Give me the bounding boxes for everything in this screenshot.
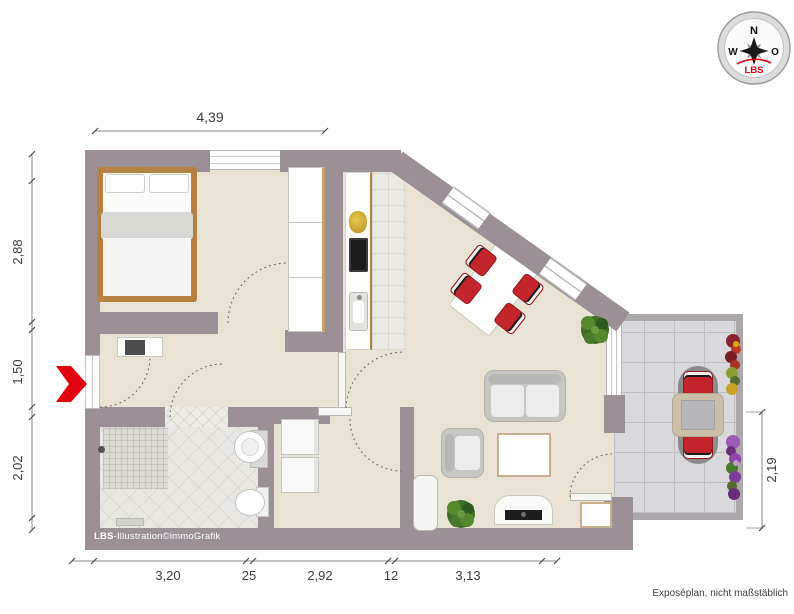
terrace-wall-right — [736, 314, 743, 520]
compass-n: N — [750, 25, 758, 37]
wardrobe-shelf-line — [289, 222, 322, 223]
living-terrace-window — [606, 321, 622, 395]
dim-bottom-1: 3,20 — [155, 568, 180, 583]
washbasin — [234, 431, 266, 463]
sofa-cushion — [491, 385, 524, 417]
bed-pillow — [149, 174, 189, 193]
floorplan-canvas: LBS-Illustration©immoGrafik — [0, 0, 794, 614]
dim-bottom-2: 25 — [242, 568, 256, 583]
washer — [281, 419, 319, 455]
bath-mat — [116, 518, 144, 526]
bedroom-window — [210, 150, 280, 170]
wall-kitchen-foot — [285, 330, 343, 352]
dim-left-2: 1,50 — [10, 359, 25, 384]
credit-rest: -Illustration©immoGrafik — [114, 531, 221, 542]
tv-unit — [494, 495, 553, 525]
shower-area — [103, 423, 168, 489]
hall-sideboard-decor — [125, 340, 145, 355]
dryer — [281, 457, 319, 493]
dim-top: 4,39 — [196, 109, 223, 125]
dim-left-1: 2,88 — [10, 239, 25, 264]
dim-bottom-5: 3,13 — [455, 568, 480, 583]
kitchen-sink — [349, 292, 368, 331]
wardrobe-shelf-line — [289, 277, 322, 278]
terrace-door-leaf — [570, 493, 612, 501]
compass-lbs-swoosh — [737, 59, 771, 64]
tv-logo-dot — [521, 512, 526, 517]
disclaimer-text: Exposéplan, nicht maßstäblich — [540, 588, 788, 599]
wall-bath-top-a — [85, 407, 165, 427]
terrace-wall-bottom — [614, 513, 743, 520]
compass-w: W — [728, 47, 738, 58]
armchair-cushion — [455, 436, 480, 470]
dim-right: 2,19 — [764, 457, 779, 482]
kitchen-fruit-bowl — [349, 211, 367, 233]
armchair — [441, 428, 484, 478]
kitchen-faucet — [357, 295, 362, 300]
terrace-table — [672, 393, 724, 437]
wall-bedroom-kitchen — [325, 150, 343, 332]
credit-brand: LBS — [94, 531, 114, 542]
kitchen-counter — [345, 172, 372, 350]
entrance-door — [85, 355, 100, 409]
shower-fitting — [98, 446, 105, 453]
armchair-backrest — [445, 434, 454, 472]
hall-sideboard — [117, 337, 163, 357]
kitchen-sink-basin — [353, 301, 364, 323]
toilet — [235, 489, 265, 516]
wardrobe — [288, 167, 325, 332]
sofa-backrest — [489, 374, 561, 384]
wall-storage-right — [400, 407, 414, 528]
bed-blanket — [103, 238, 191, 296]
wall-left-mid — [85, 332, 100, 355]
compass-brand: LBS — [745, 65, 764, 76]
bed-pillow — [105, 174, 145, 193]
dim-bottom-3: 2,92 — [307, 568, 332, 583]
compass-icon: N W O LBS — [718, 12, 790, 84]
terrace-table-top — [681, 400, 715, 430]
dim-left-3: 2,02 — [10, 455, 25, 480]
entrance-arrow-icon — [56, 366, 87, 402]
kitchen-cooktop — [349, 238, 368, 272]
washbasin-bowl — [241, 438, 259, 456]
side-table — [580, 502, 612, 528]
storage-door-leaf — [318, 407, 352, 416]
sofa — [484, 370, 566, 422]
kitchen-tile-floor — [372, 172, 405, 350]
coffee-table — [497, 433, 551, 477]
bathroom-door-threshold — [165, 407, 228, 427]
wall-terrace-mid — [604, 395, 625, 433]
dim-bottom-4: 12 — [384, 568, 398, 583]
wall-bedroom-hall — [85, 312, 218, 334]
terrace-wall-top — [614, 314, 743, 321]
sofa-cushion — [526, 385, 559, 417]
compass-o: O — [771, 47, 779, 58]
bed — [97, 167, 197, 302]
hall-living-door-leaf — [338, 352, 346, 408]
storage-cabinet — [413, 475, 438, 531]
credit-text: LBS-Illustration©immoGrafik — [94, 531, 220, 542]
bed-blanket-fold — [101, 212, 193, 240]
